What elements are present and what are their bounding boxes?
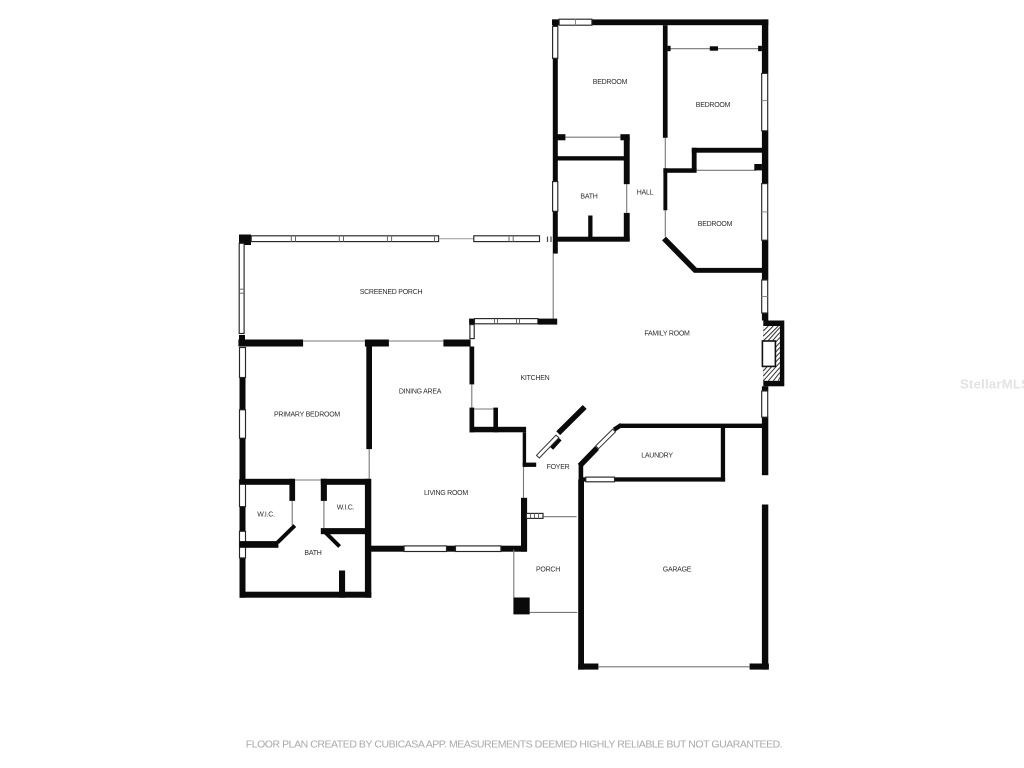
svg-text:StellarMLS: StellarMLS bbox=[960, 377, 1024, 392]
svg-text:KITCHEN: KITCHEN bbox=[521, 375, 550, 382]
svg-text:LIVING ROOM: LIVING ROOM bbox=[424, 490, 468, 497]
svg-text:FLOOR PLAN CREATED BY CUBICASA: FLOOR PLAN CREATED BY CUBICASA APP. MEAS… bbox=[246, 739, 783, 751]
svg-text:BEDROOM: BEDROOM bbox=[696, 102, 731, 109]
svg-text:BEDROOM: BEDROOM bbox=[593, 79, 628, 86]
svg-text:BEDROOM: BEDROOM bbox=[698, 221, 733, 228]
svg-text:GARAGE: GARAGE bbox=[663, 567, 692, 574]
svg-text:BATH: BATH bbox=[580, 194, 597, 201]
svg-text:LAUNDRY: LAUNDRY bbox=[641, 453, 673, 460]
svg-text:PRIMARY BEDROOM: PRIMARY BEDROOM bbox=[274, 412, 340, 419]
svg-text:W.I.C.: W.I.C. bbox=[257, 512, 275, 519]
svg-text:FOYER: FOYER bbox=[547, 464, 570, 471]
svg-text:FAMILY ROOM: FAMILY ROOM bbox=[644, 331, 690, 338]
svg-text:BATH: BATH bbox=[304, 550, 321, 557]
svg-text:HALL: HALL bbox=[637, 189, 654, 196]
svg-text:SCREENED PORCH: SCREENED PORCH bbox=[360, 289, 423, 296]
svg-text:PORCH: PORCH bbox=[536, 567, 560, 574]
svg-text:W.I.C.: W.I.C. bbox=[337, 505, 355, 512]
svg-text:DINING AREA: DINING AREA bbox=[399, 389, 442, 396]
